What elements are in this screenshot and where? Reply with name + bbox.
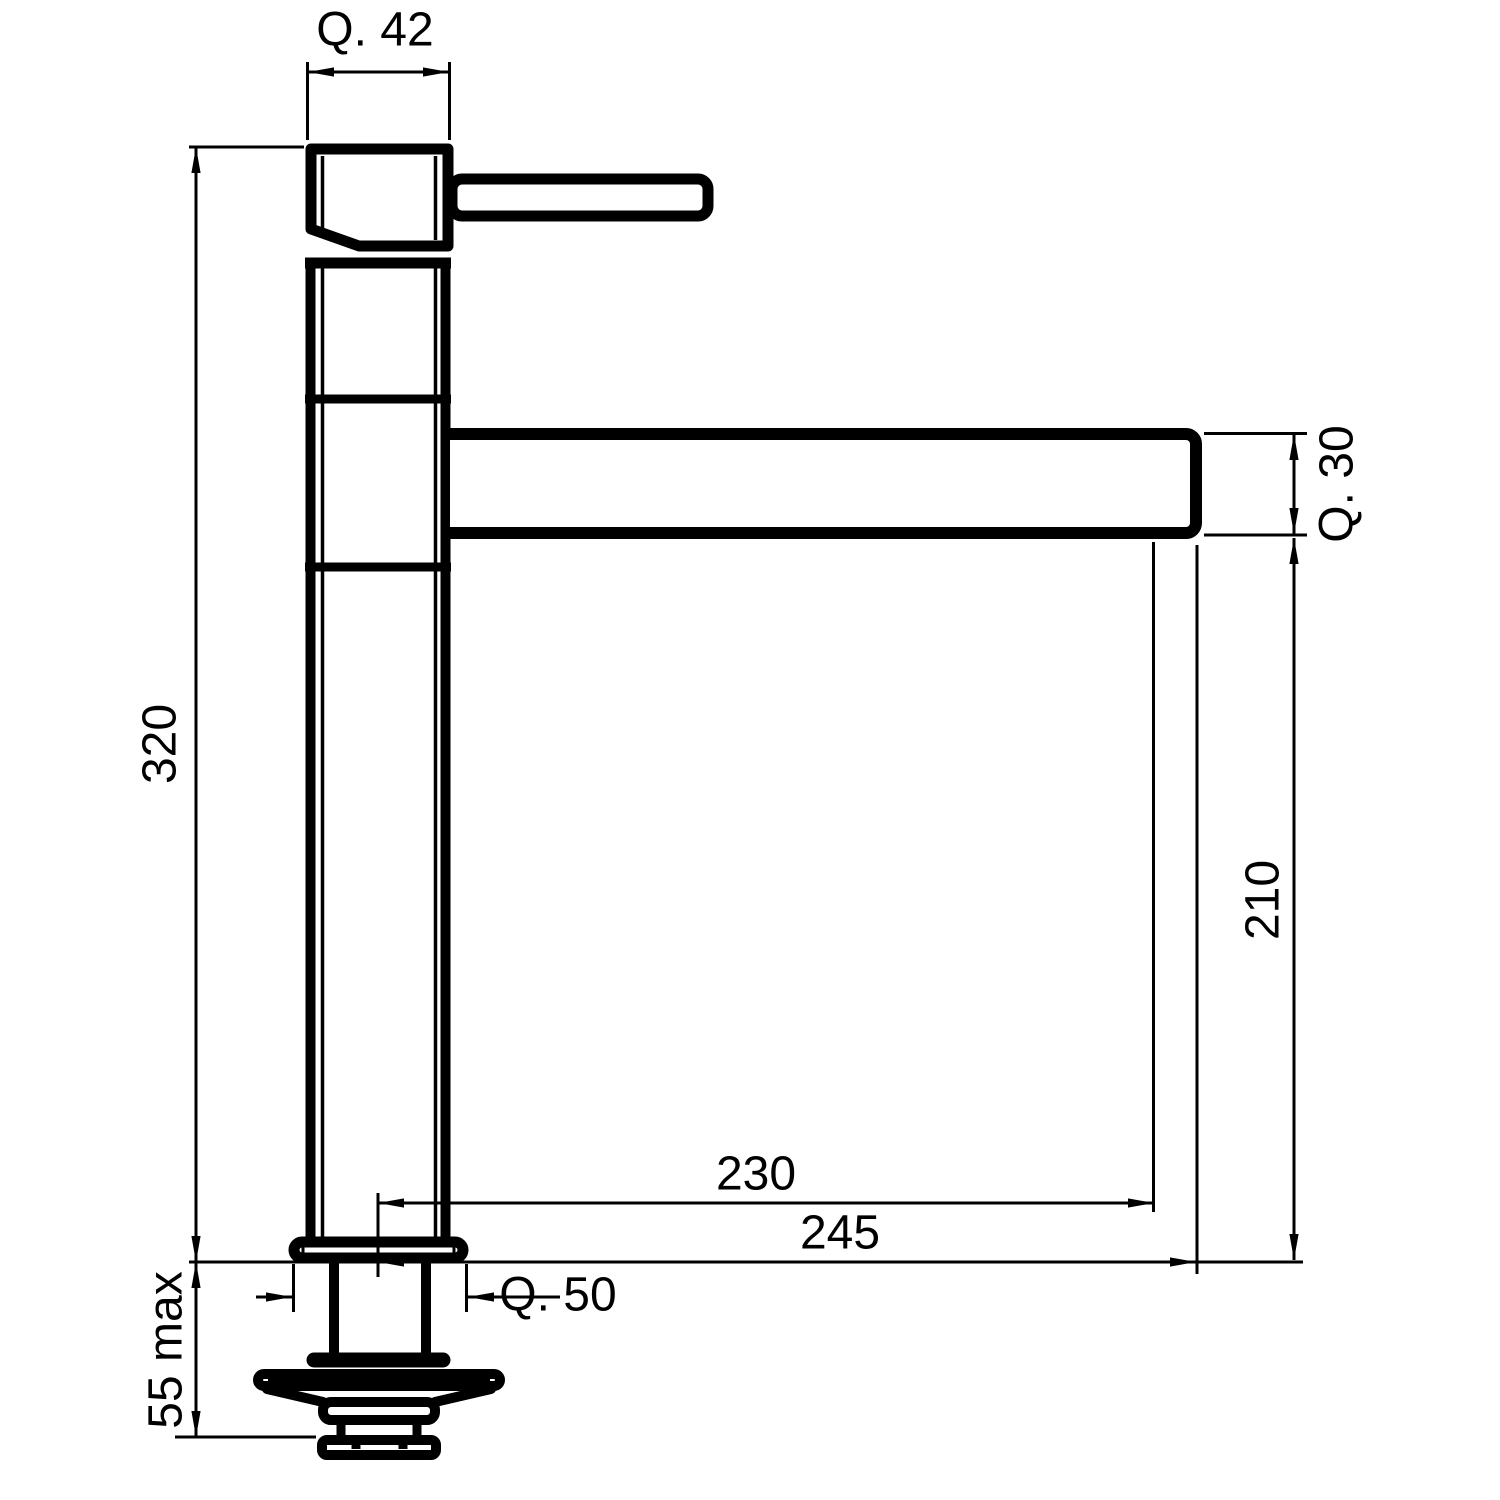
tap-dimension-drawing: Q. 42 320 55 max Q. 30 210 230 245 xyxy=(0,0,1500,1500)
dim-spout-section-label: Q. 30 xyxy=(1311,425,1364,542)
faucet-spout xyxy=(450,434,1196,533)
dim-base-width-label: Q. 50 xyxy=(499,1269,616,1322)
dim-base-width: Q. 50 xyxy=(256,1264,617,1322)
dim-overall-reach-label: 245 xyxy=(800,1207,880,1260)
dim-deck-thickness: 55 max xyxy=(140,1262,317,1437)
dim-head-width-label: Q. 42 xyxy=(316,4,433,57)
mounting-nut-bottom xyxy=(322,1440,436,1455)
dim-reach-outlet: 230 xyxy=(378,542,1154,1277)
faucet-lever xyxy=(452,179,708,216)
dim-spout-height-label: 210 xyxy=(1237,860,1290,940)
technical-drawing-page: Q. 42 320 55 max Q. 30 210 230 245 xyxy=(0,0,1500,1500)
faucet-outline xyxy=(258,149,1196,1455)
dim-overall-height-label: 320 xyxy=(134,704,187,784)
mounting-nut-body xyxy=(323,1402,435,1420)
dim-head-width: Q. 42 xyxy=(308,4,450,141)
dim-spout-height: 210 xyxy=(1237,538,1295,1260)
dim-overall-height: 320 xyxy=(134,147,305,1262)
faucet-head xyxy=(311,149,448,246)
dim-deck-thickness-label: 55 max xyxy=(140,1271,193,1428)
dim-spout-section: Q. 30 xyxy=(1204,425,1364,542)
dim-reach-outlet-label: 230 xyxy=(716,1148,796,1201)
